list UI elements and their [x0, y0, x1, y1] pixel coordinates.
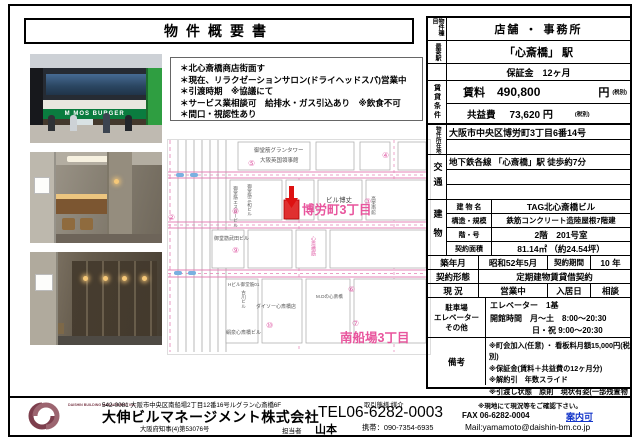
map-marker-number: ④ [382, 151, 389, 160]
chair [62, 218, 75, 231]
map-label: 大阪英国領事館 [260, 156, 299, 164]
row-label-address: 物件所在地 [428, 125, 447, 154]
license-number: 大阪府知事(4)第53076号 [140, 424, 209, 433]
notes: ※町会加入(任意) ・ 看板料月額15,000円(税別) ※保証金(賃料＋共益費… [486, 338, 630, 385]
wall-sconce [83, 276, 88, 281]
facility-label-line: エレベーター [434, 313, 479, 323]
pedestrian [103, 113, 110, 133]
fee-tax-note: (税別) [575, 110, 590, 118]
nearest-station: 「心斎橋」 駅 [447, 41, 630, 63]
wall-notice [35, 274, 53, 291]
contract-type: 定期建物賃貸借契約 [479, 270, 630, 283]
location-map: 御堂筋グランタワー 大阪英国領事館 ⑤ ④ 御堂筋エスジービル 御堂筋三和ビル … [167, 139, 431, 355]
movein-label: 入居日 [548, 284, 591, 297]
rent-currency: 円 [598, 84, 609, 100]
concrete-column [107, 152, 133, 243]
left-pillar [30, 68, 43, 125]
pedestrian [125, 115, 132, 131]
property-detail-table: 物件種目 店舗 ・ 事務所 最寄駅 「心斎橋」 駅 保証金 12ヶ月 賃貸条件 … [426, 16, 632, 389]
map-label: Hビル御堂筋01 [228, 281, 260, 288]
company-name: 大伸ビルマネージメント株式会社 [102, 407, 319, 427]
address-blank-row [447, 140, 630, 154]
logo-text: DAISHIN BUILDING MANAGEMENT INC. [68, 403, 98, 408]
glass-band [46, 74, 160, 95]
note-line: ※解約引 年数スライド [489, 374, 630, 385]
highlight-item: ＊現在、リラクゼーションサロン(ドライヘッドスパ)営業中 [180, 75, 422, 87]
chair [80, 218, 93, 231]
access-info: 地下鉄各線 「心斎橋」駅 徒歩約7分 [447, 155, 630, 170]
floor-unit: 2階 201号室 [492, 228, 630, 241]
map-marker-number: ⑨ [232, 246, 239, 255]
rent-label: 賃料 [463, 84, 485, 100]
email-address: Mail:yamamoto@daishin-bm.co.jp [465, 422, 590, 432]
structure-label: 構造・規模 [447, 214, 492, 227]
highlight-item: ＊引渡時期 ※協議にて [180, 86, 422, 98]
awning [43, 100, 146, 109]
footer-band: DAISHIN BUILDING MANAGEMENT INC. 542-008… [10, 396, 630, 435]
term-label: 契約期間 [548, 256, 591, 269]
structure: 鉄筋コンクリート造陸屋根7階建 [492, 214, 630, 227]
highlight-item: ＊北心斎橋商店街面す [180, 63, 422, 75]
contract-type-label: 契約形態 [428, 270, 479, 283]
map-marker-number: ⑤ [248, 159, 255, 168]
wall-sconce [103, 276, 108, 281]
row-label-rent-terms: 賃貸条件 [428, 81, 447, 123]
map-label: 古川ビル [241, 289, 247, 309]
facility-label-line: その他 [445, 323, 468, 333]
map-marker-number: ⑦ [352, 319, 359, 328]
note-line: ※町会加入(任意) ・ 看板料月額15,000円(税別) [489, 340, 630, 363]
rep-name: 山本 [315, 421, 337, 437]
glass-partition [72, 261, 156, 335]
built-date: 昭和52年5月 [479, 256, 548, 269]
common-fee-row: 共益費 73,620 円 (税別) [447, 104, 630, 123]
page-border: 物件概要書 M MOS BURGER [8, 4, 632, 437]
wall-notice [34, 177, 51, 194]
map-label: 御堂筋グランタワー [254, 146, 304, 154]
status-label: 現 況 [428, 284, 479, 297]
district-name: 南船場3丁目 [340, 330, 409, 345]
map-marker-number: ② [168, 213, 175, 222]
mobile-number: 携帯：090-7354-6935 [362, 423, 433, 433]
property-address: 大阪市中央区博労町3丁目6番14号 [447, 125, 630, 140]
deal-type: 取引態様:媒介 [364, 400, 404, 409]
row-label-building: 建物 [428, 200, 447, 255]
row-label-access: 交通 [428, 155, 447, 199]
map-marker-number: ⑧ [232, 207, 239, 216]
street-name: 心斎橋筋 [310, 235, 316, 257]
fee-label: 共益費 [467, 107, 496, 121]
facility-line: エレベーター 1基 [490, 300, 630, 313]
district-name: 博労町3丁目 [302, 202, 371, 217]
fax-number: FAX 06-6282-0004 [462, 411, 530, 420]
row-label-type: 物件種目 [428, 18, 447, 40]
map-svg: 御堂筋グランタワー 大阪英国領事館 ⑤ ④ 御堂筋エスジービル 御堂筋三和ビル … [168, 140, 428, 352]
photo-lobby-interior [30, 152, 162, 243]
row-label-empty [428, 64, 447, 80]
green-banner [146, 68, 162, 125]
facility-label: 駐車場 エレベーター その他 [428, 298, 486, 337]
property-flyer: 物件概要書 M MOS BURGER [0, 0, 640, 440]
map-label: 御堂筋三和ビル [247, 183, 253, 217]
rent-amount: 490,800 [497, 85, 540, 99]
row-label-station: 最寄駅 [428, 41, 447, 63]
map-label: ダイソー心斎橋店 [256, 303, 296, 310]
pedestrian [48, 115, 55, 131]
map-label: 絹泉心斎橋ビル [226, 329, 261, 336]
built-label: 築年月 [428, 256, 479, 269]
page-title: 物件概要書 [24, 18, 414, 44]
map-marker-number: ⑥ [348, 285, 355, 294]
facility-info: エレベーター 1基 開館時間 月～土 8:00～20:30 日・祝 9:00～2… [486, 298, 630, 337]
highlight-item: ＊間口・視認性あり [180, 109, 422, 121]
highlight-item: ＊サービス業相談可 給排水・ガス引込あり ※飲食不可 [180, 98, 422, 110]
left-wall [30, 152, 56, 243]
map-label: 御堂筋武田ビル [214, 235, 249, 242]
map-label: 高栄南館 [371, 195, 377, 216]
facility-line: 日・祝 9:00～20:30 [490, 325, 630, 338]
rent-tax-note: (税別) [612, 88, 627, 96]
current-status: 営業中 [479, 284, 548, 297]
left-wall [30, 252, 58, 345]
rep-label: 担当者 [282, 425, 302, 435]
map-label: M.Dの心斎橋 [316, 293, 343, 300]
building-name: TAG北心斎橋ビル [492, 200, 630, 213]
property-highlights: ＊北心斎橋商店街面す ＊現在、リラクゼーションサロン(ドライヘッドスパ)営業中 … [170, 57, 423, 121]
notes-label: 備考 [428, 338, 486, 385]
photo-building-exterior: M MOS BURGER [30, 54, 162, 143]
contract-area: 81.14㎡ （約24.54坪） [492, 242, 630, 255]
ceiling-light [67, 156, 112, 162]
facility-label-line: 駐車場 [445, 303, 468, 313]
rent-row: 賃料 490,800 円 (税別) [447, 81, 630, 104]
property-type: 店舗 ・ 事務所 [447, 18, 630, 40]
deposit: 保証金 12ヶ月 [447, 64, 630, 80]
note-line: ※保証金(賃料＋共益費の12ヶ月分) [489, 363, 630, 374]
building-name-label: 建 物 名 [447, 200, 492, 213]
contract-term: 10 年 [591, 256, 630, 269]
movein-date: 相談 [591, 284, 630, 297]
photo-interior-glass [30, 252, 162, 345]
pedestrian [70, 115, 77, 131]
company-logo-icon [22, 402, 66, 430]
area-label: 契約面積 [447, 242, 492, 255]
access-blank-row [447, 170, 630, 185]
fee-amount: 73,620 円 [510, 106, 553, 121]
onsite-note: ※現地にて現況等をご確認下さい。 [478, 400, 582, 410]
map-marker-number: ⑩ [266, 321, 273, 330]
floor-label: 階・号 [447, 228, 492, 241]
facility-line: 開館時間 月～土 8:00～20:30 [490, 313, 630, 326]
access-blank-row [447, 185, 630, 199]
wood-counter [54, 199, 107, 214]
